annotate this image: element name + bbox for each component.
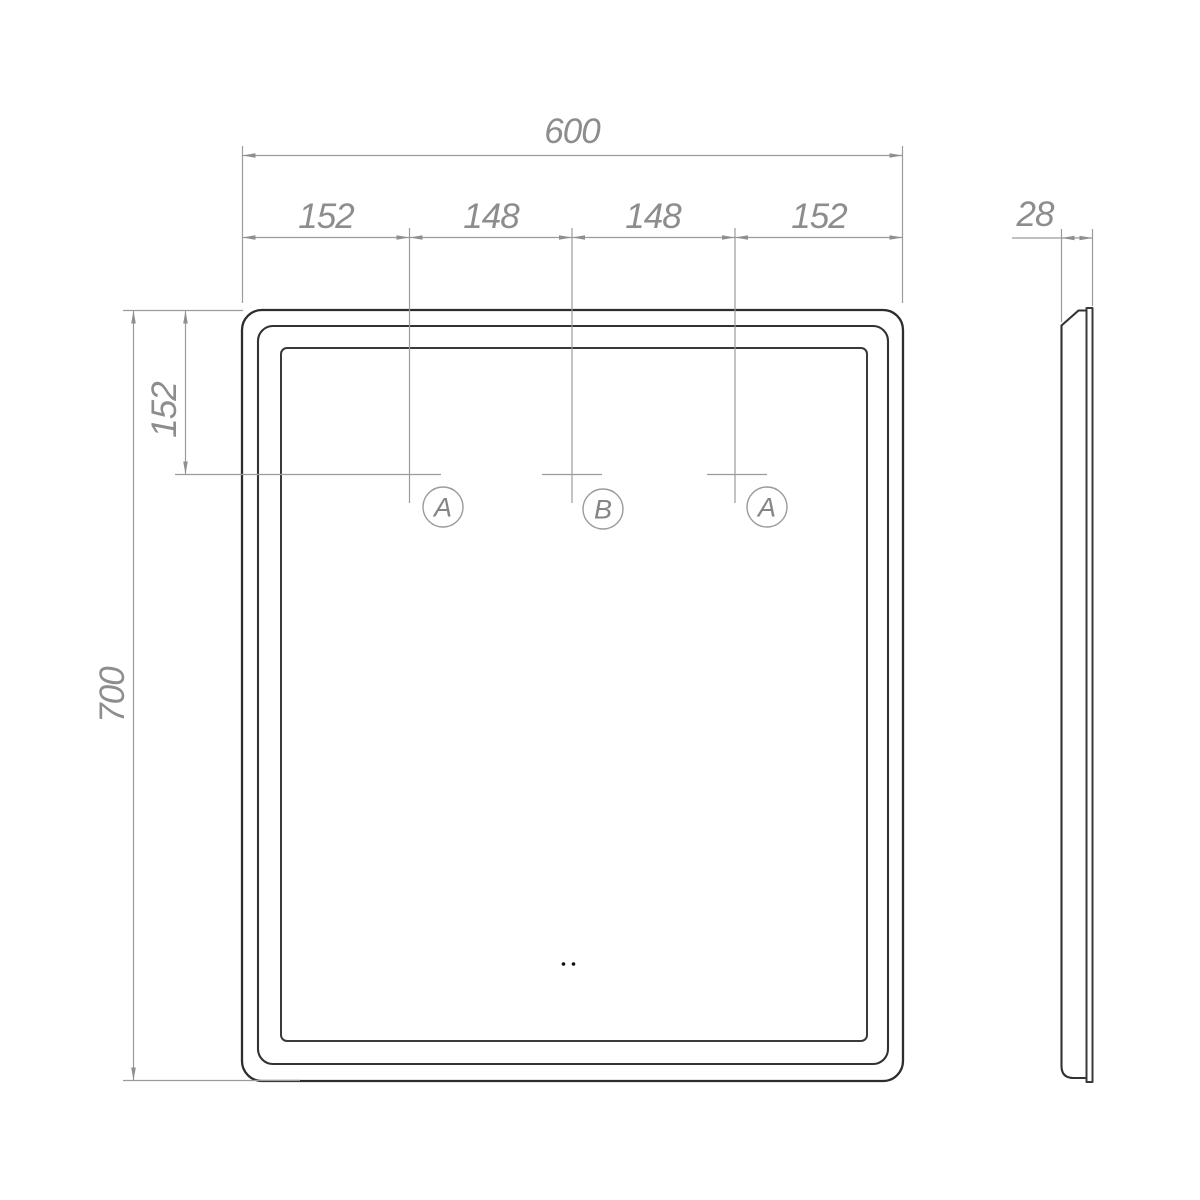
dimension-left-top-offset: 152 [145, 311, 188, 475]
dim-label-left-top-offset: 152 [145, 382, 184, 438]
arrowhead [243, 153, 256, 158]
dim-label-depth: 28 [1016, 195, 1055, 234]
marker-label-a-right: A [756, 493, 776, 523]
side-view [1062, 308, 1093, 1082]
dim-label-overall-height: 700 [93, 666, 132, 723]
dim-label-segment-3: 148 [625, 197, 682, 236]
arrowhead [183, 311, 188, 324]
side-front-face-profile [1062, 311, 1087, 1079]
dim-label-overall-width: 600 [544, 112, 601, 151]
arrowhead [890, 235, 903, 240]
arrowhead [131, 1068, 136, 1081]
dimension-overall-height: 700 [93, 311, 300, 1081]
arrowhead [572, 235, 585, 240]
drawing-canvas: 600 152 148 148 152 A B A [0, 0, 1200, 1200]
arrowhead [131, 311, 136, 324]
side-back-panel [1087, 308, 1093, 1082]
arrowhead [243, 235, 256, 240]
front-inner-light-contour [281, 348, 867, 1041]
arrowhead [183, 462, 188, 475]
arrowhead [410, 235, 423, 240]
touch-sensor-dot [562, 962, 566, 966]
arrowhead [735, 235, 748, 240]
arrowhead [890, 153, 903, 158]
front-middle-frame [258, 326, 888, 1064]
arrowhead [1062, 236, 1075, 241]
marker-label-a-left: A [432, 493, 452, 523]
technical-drawing: 600 152 148 148 152 A B A [0, 0, 1200, 1200]
dimension-depth: 28 [1012, 195, 1093, 322]
dim-label-segment-1: 152 [298, 197, 354, 236]
arrowhead [559, 235, 572, 240]
dim-label-segment-4: 152 [791, 197, 847, 236]
marker-label-b: B [594, 495, 612, 525]
arrowhead [722, 235, 735, 240]
fixing-point-markers: A B A [175, 228, 787, 529]
arrowhead [397, 235, 410, 240]
dim-label-segment-2: 148 [463, 197, 520, 236]
touch-sensor-dot [572, 962, 576, 966]
arrowhead [1080, 236, 1093, 241]
